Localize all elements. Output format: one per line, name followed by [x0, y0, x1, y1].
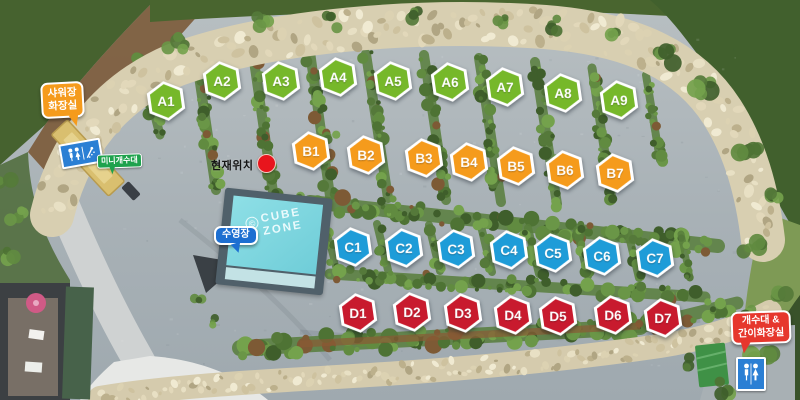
site-label: A6: [432, 62, 468, 102]
campground-map: © CUBE ZONE 샤워장 화장실 미니개수대: [0, 0, 800, 400]
site-marker-c7[interactable]: C7: [634, 236, 675, 281]
site-label: B2: [348, 135, 384, 175]
site-label: D5: [540, 296, 576, 336]
restroom-icon: [63, 142, 99, 165]
site-marker-b6[interactable]: B6: [544, 148, 585, 193]
site-marker-a6[interactable]: A6: [429, 60, 470, 105]
site-label: A5: [375, 61, 411, 101]
site-marker-d3[interactable]: D3: [442, 291, 483, 336]
site-label: A1: [148, 81, 184, 121]
site-marker-a2[interactable]: A2: [201, 59, 242, 104]
site-label: C7: [637, 238, 673, 278]
site-marker-d5[interactable]: D5: [537, 294, 578, 339]
sign-sink-portable-toilet: 개수대 & 간이화장실: [730, 310, 791, 345]
site-marker-c1[interactable]: C1: [332, 225, 373, 270]
site-label: D4: [495, 295, 531, 335]
restroom-icon-sign: [736, 357, 766, 391]
building-bottom-left: [0, 283, 94, 400]
site-label: B3: [406, 138, 442, 178]
site-marker-b4[interactable]: B4: [448, 140, 489, 185]
site-label: B5: [498, 146, 534, 186]
site-marker-d1[interactable]: D1: [337, 291, 378, 336]
site-label: D7: [645, 298, 681, 338]
site-label: B6: [547, 150, 583, 190]
site-marker-b5[interactable]: B5: [495, 144, 536, 189]
sign-pool-label: 수영장: [222, 229, 250, 240]
site-label: A8: [545, 73, 581, 113]
site-marker-c6[interactable]: C6: [581, 234, 622, 279]
site-label: C5: [535, 233, 571, 273]
site-marker-c5[interactable]: C5: [532, 231, 573, 276]
site-label: B4: [451, 142, 487, 182]
sign-shower-line2: 화장실: [48, 99, 78, 114]
site-label: C1: [335, 227, 371, 267]
restroom-icon: [740, 361, 762, 387]
site-label: B7: [597, 153, 633, 193]
bubble-tail: [739, 341, 751, 354]
current-location-label: 현재위치: [211, 157, 253, 173]
sign-pool: 수영장: [214, 226, 258, 245]
sign-shower-toilet: 샤워장 화장실: [40, 81, 85, 119]
site-label: D1: [340, 293, 376, 333]
site-marker-c3[interactable]: C3: [435, 227, 476, 272]
site-marker-a1[interactable]: A1: [145, 79, 186, 124]
site-label: B1: [293, 131, 329, 171]
site-label: A3: [263, 61, 299, 101]
site-marker-d7[interactable]: D7: [642, 296, 683, 341]
site-label: C3: [438, 229, 474, 269]
site-marker-a9[interactable]: A9: [598, 78, 639, 123]
site-marker-b2[interactable]: B2: [345, 133, 386, 178]
site-label: D2: [394, 292, 430, 332]
site-marker-a8[interactable]: A8: [542, 71, 583, 116]
site-label: D3: [445, 293, 481, 333]
sign-sink-line2: 간이화장실: [738, 327, 784, 341]
site-marker-b3[interactable]: B3: [403, 136, 444, 181]
site-label: A7: [487, 67, 523, 107]
site-label: C2: [386, 228, 422, 268]
site-label: A4: [320, 57, 356, 97]
site-label: A2: [204, 61, 240, 101]
site-marker-d2[interactable]: D2: [391, 290, 432, 335]
sign-mini-sink: 미니개수대: [97, 153, 142, 169]
sign-mini-sink-label: 미니개수대: [101, 155, 138, 165]
site-marker-b1[interactable]: B1: [290, 129, 331, 174]
site-label: A9: [601, 80, 637, 120]
site-marker-a7[interactable]: A7: [484, 65, 525, 110]
site-marker-a3[interactable]: A3: [260, 59, 301, 104]
plate-tail: [109, 166, 115, 174]
site-marker-b7[interactable]: B7: [594, 151, 635, 196]
site-marker-a4[interactable]: A4: [317, 55, 358, 100]
site-label: C4: [491, 230, 527, 270]
site-marker-c2[interactable]: C2: [383, 226, 424, 271]
site-marker-a5[interactable]: A5: [372, 59, 413, 104]
site-marker-d4[interactable]: D4: [492, 293, 533, 338]
site-label: C6: [584, 236, 620, 276]
sign-sink-line1: 개수대 &: [738, 314, 784, 328]
site-marker-c4[interactable]: C4: [488, 228, 529, 273]
site-label: D6: [595, 295, 631, 335]
current-location-dot: [257, 154, 276, 173]
site-marker-d6[interactable]: D6: [592, 293, 633, 338]
